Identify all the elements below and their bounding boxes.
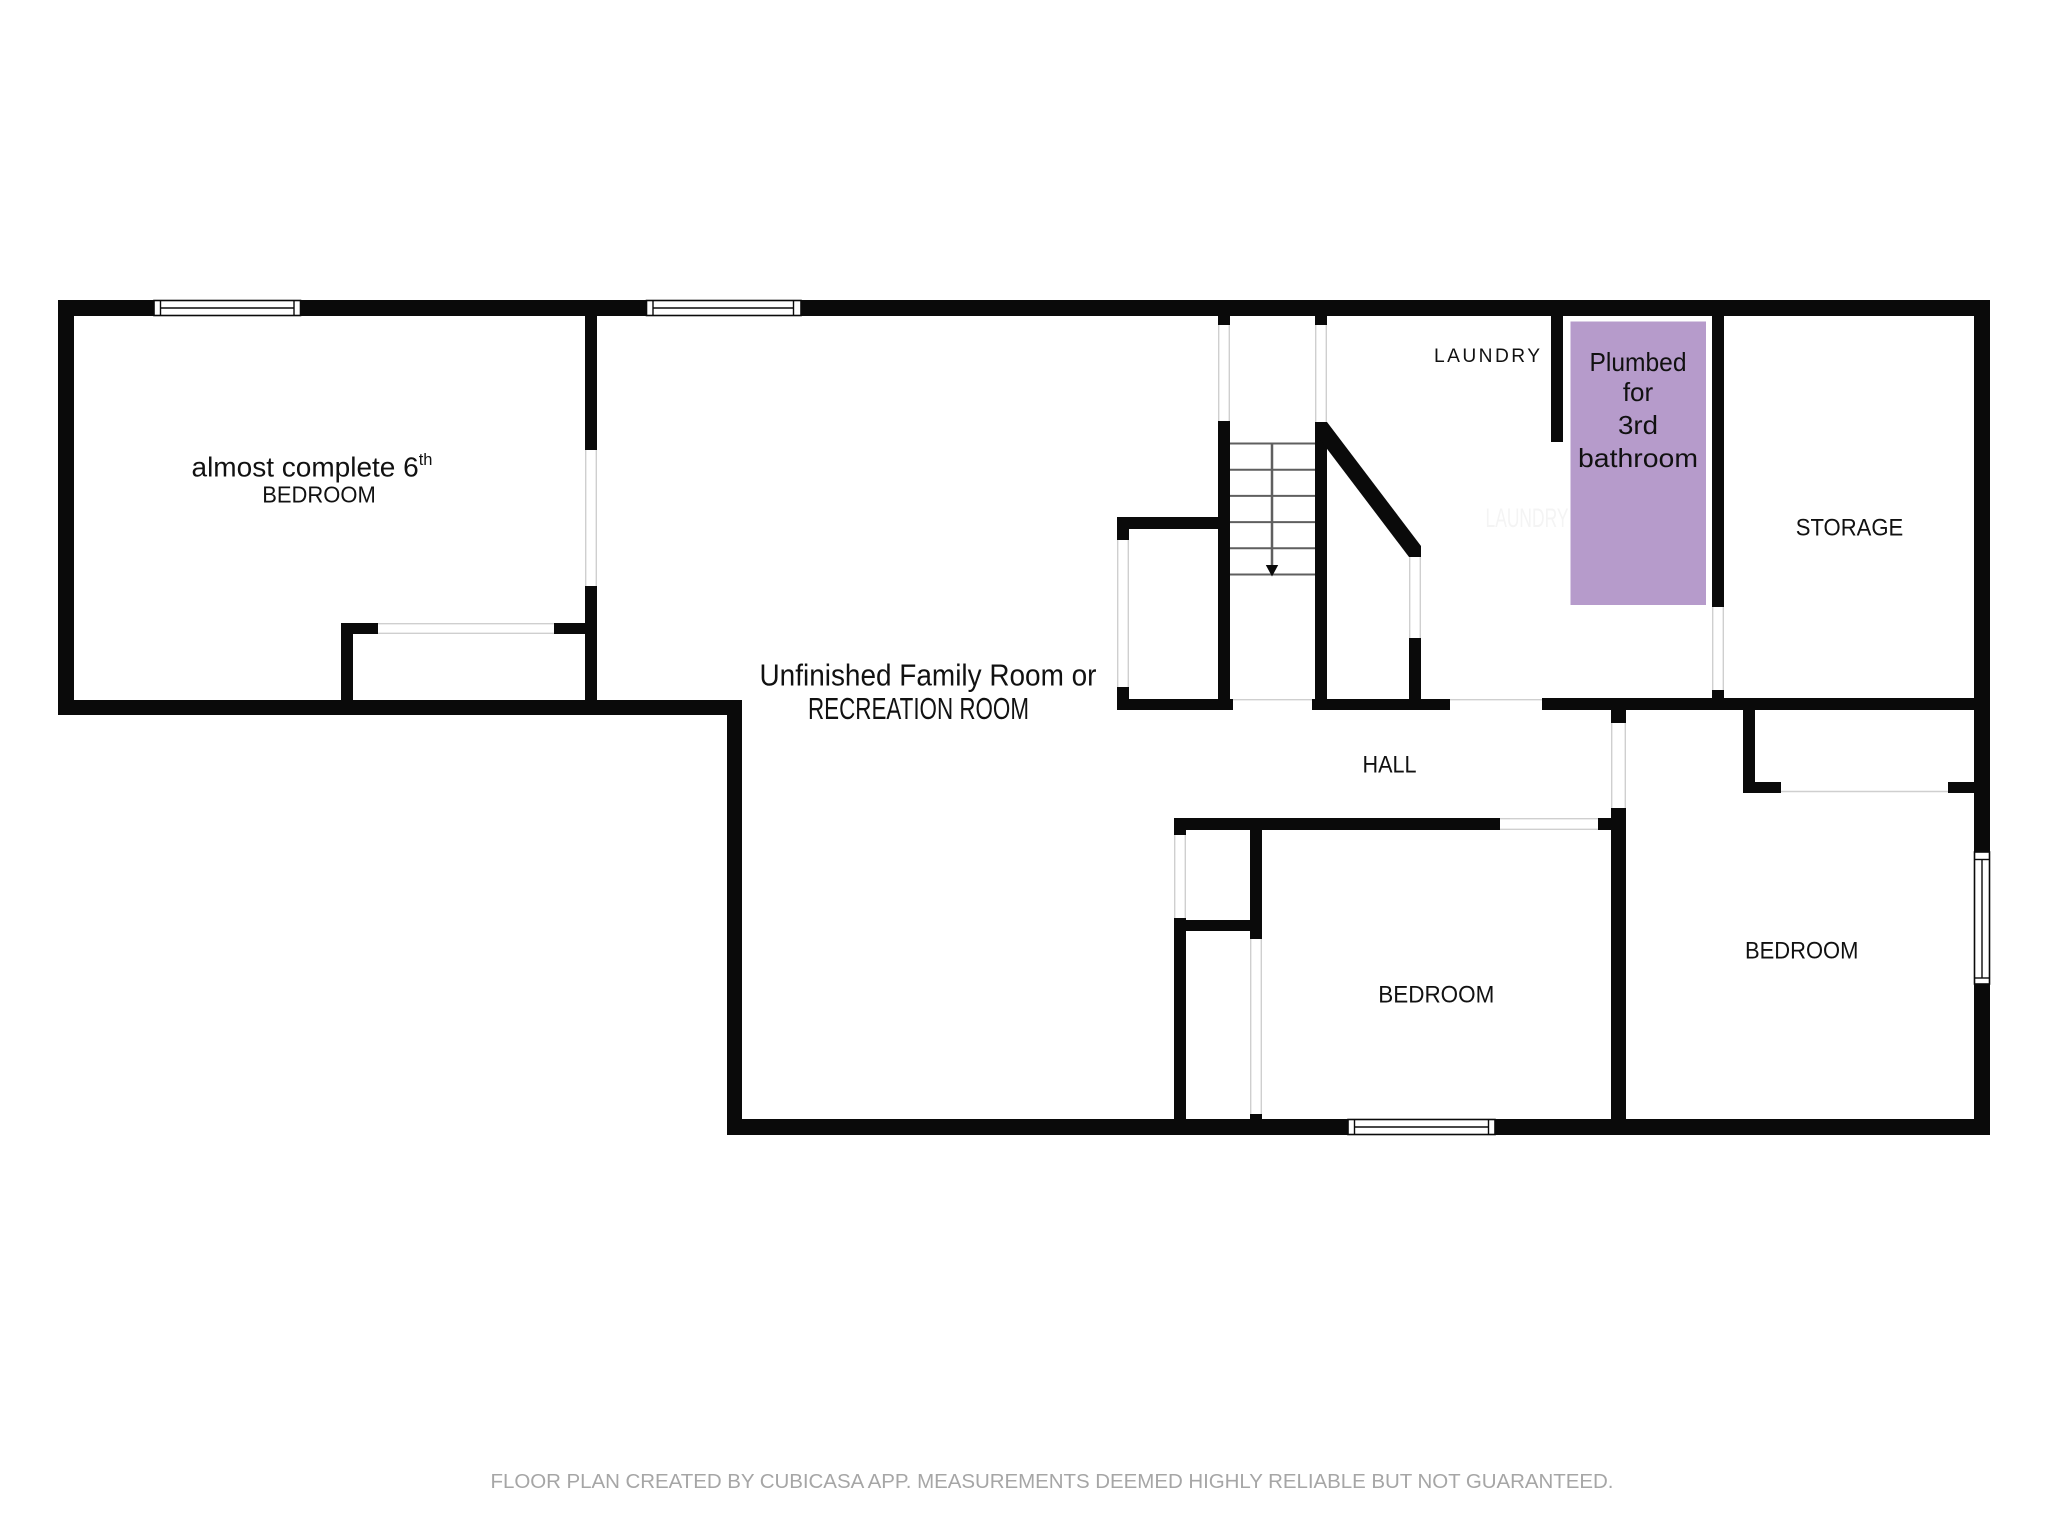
svg-text:HALL: HALL xyxy=(1363,752,1417,779)
svg-text:BEDROOM: BEDROOM xyxy=(1745,938,1859,965)
svg-text:Unfinished Family Room or: Unfinished Family Room or xyxy=(760,657,1097,692)
svg-text:almost complete 6th: almost complete 6th xyxy=(192,451,433,483)
svg-text:LAUNDRY: LAUNDRY xyxy=(1486,503,1569,533)
svg-text:BEDROOM: BEDROOM xyxy=(1378,981,1494,1008)
svg-text:LAUNDRY: LAUNDRY xyxy=(1434,346,1540,367)
svg-text:RECREATION ROOM: RECREATION ROOM xyxy=(808,691,1029,726)
svg-text:for: for xyxy=(1623,377,1654,407)
svg-text:STORAGE: STORAGE xyxy=(1796,515,1904,542)
svg-text:FLOOR PLAN CREATED BY CUBICASA: FLOOR PLAN CREATED BY CUBICASA APP. MEAS… xyxy=(491,1470,1614,1493)
svg-text:bathroom: bathroom xyxy=(1578,443,1698,473)
svg-text:Plumbed: Plumbed xyxy=(1590,347,1687,377)
svg-text:BEDROOM: BEDROOM xyxy=(262,481,376,507)
svg-text:3rd: 3rd xyxy=(1618,410,1658,440)
